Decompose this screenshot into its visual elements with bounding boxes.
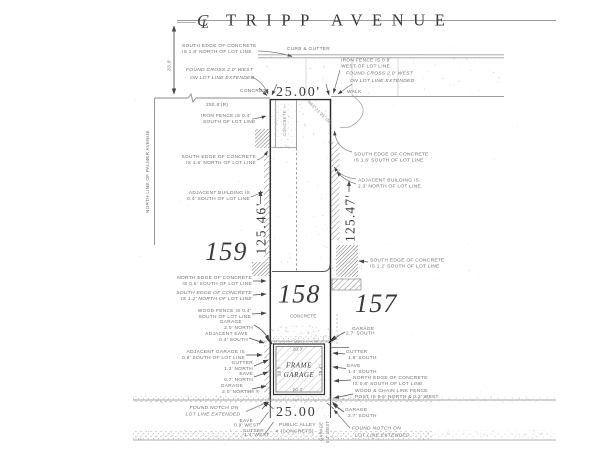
svg-text:SOUTH OF LOT LINE: SOUTH OF LOT LINE [203,119,255,125]
svg-text:159: 159 [205,237,248,266]
svg-text:SOUTH EDGE OF CONCRETE: SOUTH EDGE OF CONCRETE [181,154,256,160]
svg-text:SOUTH EDGE OF CONCRETE: SOUTH EDGE OF CONCRETE [182,43,257,49]
svg-text:WOOD & CHAIN LINK FENCE: WOOD & CHAIN LINK FENCE [355,388,428,394]
svg-text:SOUTH EDGE OF CONCRETE: SOUTH EDGE OF CONCRETE [370,258,445,264]
svg-text:2.0' NORTH: 2.0' NORTH [224,325,253,331]
svg-text:0.9' WEST: 0.9' WEST [234,423,259,429]
svg-text:CONCRETE: CONCRETE [290,314,317,319]
svg-text:SOUTH EDGE OF CONCRETE: SOUTH EDGE OF CONCRETE [176,290,252,296]
svg-text:2.0' NORTH: 2.0' NORTH [222,389,251,395]
svg-text:0.4' SOUTH OF LOT LINE: 0.4' SOUTH OF LOT LINE [187,196,250,202]
svg-text:ON LOT LINE EXTENDED: ON LOT LINE EXTENDED [190,75,255,81]
svg-text:2.7' SOUTH: 2.7' SOUTH [348,413,377,419]
svg-text:EAVE: EAVE [239,371,253,377]
svg-text:GARAGE: GARAGE [220,319,242,325]
svg-text:125.46': 125.46' [254,202,269,255]
svg-text:PUBLIC ALLEY: PUBLIC ALLEY [279,422,316,428]
svg-text:25.00: 25.00 [276,405,317,420]
svg-text:GUTTER: GUTTER [346,349,368,355]
svg-text:ADJACENT BUILDING IS: ADJACENT BUILDING IS [189,190,250,196]
svg-text:SOUTH EDGE OF CONCRETE: SOUTH EDGE OF CONCRETE [354,152,429,158]
svg-text:1.4' SOUTH: 1.4' SOUTH [348,369,377,375]
svg-text:GARAGE: GARAGE [345,407,367,413]
svg-text:FOUND CROSS 2.0' WEST: FOUND CROSS 2.0' WEST [186,67,254,73]
svg-text:IS 1.5' NORTH OF LOT LINE: IS 1.5' NORTH OF LOT LINE [186,160,256,166]
svg-text:125.47': 125.47' [343,194,358,242]
svg-text:250.8'(R): 250.8'(R) [206,102,228,108]
svg-text:IRON FENCE IS 0.9': IRON FENCE IS 0.9' [341,58,391,64]
svg-text:NORTH EDGE OF CONCRETE: NORTH EDGE OF CONCRETE [353,375,428,381]
svg-text:0.4' SOUTH: 0.4' SOUTH [219,337,248,343]
svg-text:ADJACENT GARAGE IS: ADJACENT GARAGE IS [187,349,245,355]
svg-text:IRON FENCE IS 0.4': IRON FENCE IS 0.4' [201,113,251,119]
svg-text:NORTH EDGE OF CONCRETE: NORTH EDGE OF CONCRETE [177,275,252,281]
svg-text:ON LOT LINE EXTENDED: ON LOT LINE EXTENDED [350,78,415,84]
svg-text:ADJACENT EAVE: ADJACENT EAVE [205,331,248,337]
svg-text:IS 1.2' NORTH OF LOT LINE: IS 1.2' NORTH OF LOT LINE [181,296,252,302]
svg-text:EAVE: EAVE [347,363,361,369]
svg-text:CURB & GUTTER: CURB & GUTTER [287,46,330,52]
svg-text:FOUND NOTCH ON: FOUND NOTCH ON [352,426,401,432]
svg-text:(66.9): (66.9) [248,390,260,394]
svg-text:NORTH LINE OF PALMER AVENUE: NORTH LINE OF PALMER AVENUE [145,130,150,213]
svg-text:IS 1.6' SOUTH OF LOT LINE: IS 1.6' SOUTH OF LOT LINE [354,158,424,164]
svg-text:20.5': 20.5' [277,365,282,376]
svg-text:IS 1.2' SOUTH OF LOT LINE: IS 1.2' SOUTH OF LOT LINE [370,264,440,270]
svg-text:2.3' NORTH OF LOT LINE: 2.3' NORTH OF LOT LINE [358,184,421,190]
svg-text:FOUND CROSS 2.0' WEST: FOUND CROSS 2.0' WEST [346,71,414,77]
svg-text:2.7' SOUTH: 2.7' SOUTH [346,331,375,337]
svg-text:33.0': 33.0' [167,59,173,71]
svg-text:WOOD FENCE IS 0.4': WOOD FENCE IS 0.4' [198,308,251,314]
svg-text:GARAGE: GARAGE [221,383,243,389]
svg-text:25.00': 25.00' [276,85,321,100]
svg-text:FRAME: FRAME [285,362,312,370]
svg-text:IS 0.6' SOUTH OF LOT LINE: IS 0.6' SOUTH OF LOT LINE [182,281,252,287]
svg-text:GARAGE: GARAGE [284,371,315,379]
svg-text:GUTTER: GUTTER [231,360,253,366]
svg-text:158: 158 [278,280,321,309]
svg-text:IS 1.8' NORTH OF LOT LINE: IS 1.8' NORTH OF LOT LINE [182,49,252,55]
svg-text:1.8' SOUTH: 1.8' SOUTH [348,355,377,361]
svg-text:0.7' NORTH: 0.7' NORTH [224,377,253,383]
svg-text:L: L [201,16,209,31]
svg-text:20.3': 20.3' [293,347,304,352]
svg-text:IS 0.8' SOUTH OF LOT LINE: IS 0.8' SOUTH OF LOT LINE [353,381,423,387]
svg-text:20.4': 20.4' [293,387,304,392]
svg-text:157: 157 [355,289,398,318]
svg-text:20.4': 20.4' [318,365,323,376]
svg-text:LOT LINE EXTENDED: LOT LINE EXTENDED [186,411,241,417]
svg-text:WEST OF LOT LINE: WEST OF LOT LINE [341,64,390,70]
svg-text:FOUND NOTCH ON: FOUND NOTCH ON [190,405,239,411]
svg-text:ADJACENT BUILDING IS: ADJACENT BUILDING IS [358,178,419,184]
svg-text:TRIPP AVENUE: TRIPP AVENUE [226,11,454,30]
